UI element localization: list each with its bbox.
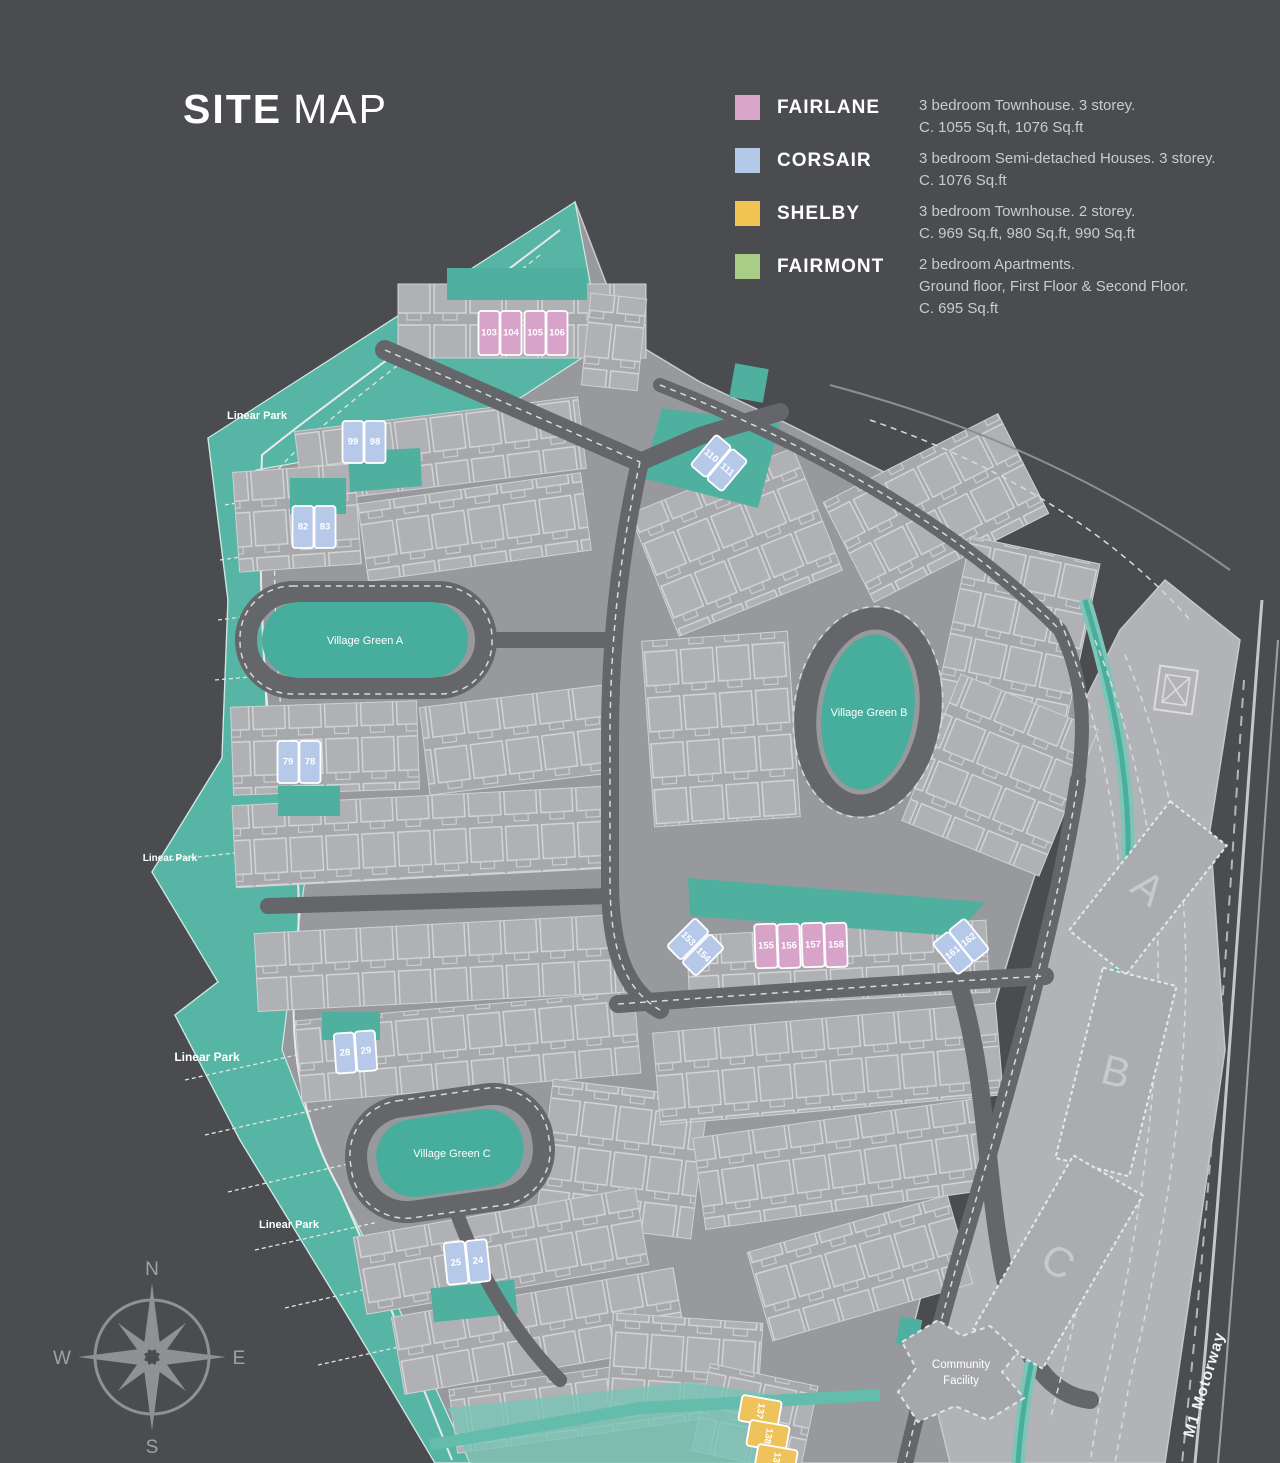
unit-marker-103: 103 (479, 311, 500, 355)
svg-text:106: 106 (549, 328, 565, 339)
compass-s: S (146, 1437, 159, 1458)
shelby-name: SHELBY (777, 201, 919, 225)
compass-w: W (53, 1348, 71, 1369)
unit-marker-98: 98 (365, 421, 386, 463)
unit-marker-156: 156 (777, 924, 801, 969)
village-green-a: Village Green A (240, 586, 492, 694)
shelby-desc-line1: 3 bedroom Townhouse. 2 storey. (919, 201, 1135, 223)
shelby-desc-line2: C. 969 Sq.ft, 980 Sq.ft, 990 Sq.ft (919, 223, 1135, 245)
community-facility-label-2: Facility (943, 1375, 979, 1387)
linear-park-label-4: Linear Park (259, 1219, 320, 1231)
corsair-desc: 3 bedroom Semi-detached Houses. 3 storey… (919, 148, 1216, 192)
fairlane-name: FAIRLANE (777, 95, 919, 119)
svg-text:24: 24 (472, 1255, 484, 1267)
compass-e: E (233, 1348, 246, 1369)
fairmont-desc: 2 bedroom Apartments. Ground floor, Firs… (919, 254, 1188, 320)
unit-marker-29: 29 (355, 1030, 378, 1071)
community-facility-label-1: Community (932, 1359, 990, 1371)
svg-text:25: 25 (450, 1257, 462, 1269)
village-green-b-label: Village Green B (831, 707, 908, 719)
compass-star (78, 1283, 226, 1431)
compass-n: N (145, 1259, 159, 1280)
linear-park-label-3: Linear Park (174, 1050, 240, 1064)
village-green-c-label: Village Green C (413, 1148, 491, 1160)
legend: FAIRLANE 3 bedroom Townhouse. 3 storey. … (735, 95, 1275, 329)
shelby-desc: 3 bedroom Townhouse. 2 storey. C. 969 Sq… (919, 201, 1135, 245)
fairlane-desc-line1: 3 bedroom Townhouse. 3 storey. (919, 95, 1135, 117)
unit-marker-158: 158 (824, 923, 848, 968)
fairmont-desc-line2: Ground floor, First Floor & Second Floor… (919, 276, 1188, 298)
legend-row-fairmont: FAIRMONT 2 bedroom Apartments. Ground fl… (735, 254, 1275, 320)
svg-text:28: 28 (339, 1047, 350, 1059)
unit-marker-106: 106 (547, 311, 568, 355)
unit-marker-105: 105 (525, 311, 546, 355)
svg-text:104: 104 (503, 328, 520, 339)
title-light: MAP (293, 86, 388, 132)
svg-text:98: 98 (370, 437, 381, 448)
page-title: SITEMAP (183, 86, 388, 133)
corsair-desc-line1: 3 bedroom Semi-detached Houses. 3 storey… (919, 148, 1216, 170)
fairmont-desc-line1: 2 bedroom Apartments. (919, 254, 1188, 276)
svg-text:156: 156 (781, 940, 797, 952)
corsair-swatch (735, 148, 760, 173)
fairlane-swatch (735, 95, 760, 120)
unit-marker-79: 79 (278, 741, 299, 783)
svg-text:155: 155 (758, 940, 775, 952)
svg-text:29: 29 (360, 1045, 371, 1057)
linear-park-label-1: Linear Park (227, 410, 288, 422)
unit-marker-155: 155 (754, 924, 778, 969)
site-map-page: Village Green A Village Green B Village … (0, 0, 1280, 1463)
unit-marker-157: 157 (801, 923, 825, 968)
svg-text:99: 99 (348, 437, 359, 448)
svg-text:158: 158 (828, 939, 844, 951)
svg-text:103: 103 (481, 328, 497, 339)
compass-rose: N E S W (53, 1259, 245, 1458)
unit-marker-28: 28 (334, 1032, 357, 1073)
legend-row-shelby: SHELBY 3 bedroom Townhouse. 2 storey. C.… (735, 201, 1275, 245)
svg-text:157: 157 (805, 939, 821, 951)
fairlane-desc-line2: C. 1055 Sq.ft, 1076 Sq.ft (919, 117, 1135, 139)
linear-park-label-2: Linear Park (143, 853, 198, 864)
unit-marker-78: 78 (300, 741, 321, 783)
svg-text:82: 82 (298, 522, 309, 533)
legend-row-corsair: CORSAIR 3 bedroom Semi-detached Houses. … (735, 148, 1275, 192)
fairmont-desc-line3: C. 695 Sq.ft (919, 298, 1188, 320)
svg-text:83: 83 (320, 522, 331, 533)
fairmont-swatch (735, 254, 760, 279)
svg-text:105: 105 (527, 328, 544, 339)
title-bold: SITE (183, 86, 282, 132)
compass-letters: N E S W (53, 1259, 245, 1458)
fairlane-desc: 3 bedroom Townhouse. 3 storey. C. 1055 S… (919, 95, 1135, 139)
unit-marker-104: 104 (501, 311, 522, 355)
svg-text:79: 79 (283, 757, 294, 768)
village-green-a-label: Village Green A (327, 635, 404, 647)
corsair-name: CORSAIR (777, 148, 919, 172)
fairmont-name: FAIRMONT (777, 254, 919, 278)
legend-row-fairlane: FAIRLANE 3 bedroom Townhouse. 3 storey. … (735, 95, 1275, 139)
corsair-desc-line2: C. 1076 Sq.ft (919, 170, 1216, 192)
unit-marker-24: 24 (465, 1239, 490, 1283)
shelby-swatch (735, 201, 760, 226)
unit-marker-82: 82 (293, 506, 314, 548)
svg-text:78: 78 (305, 757, 316, 768)
unit-marker-99: 99 (343, 421, 364, 463)
unit-marker-83: 83 (315, 506, 336, 548)
unit-marker-25: 25 (443, 1241, 468, 1285)
